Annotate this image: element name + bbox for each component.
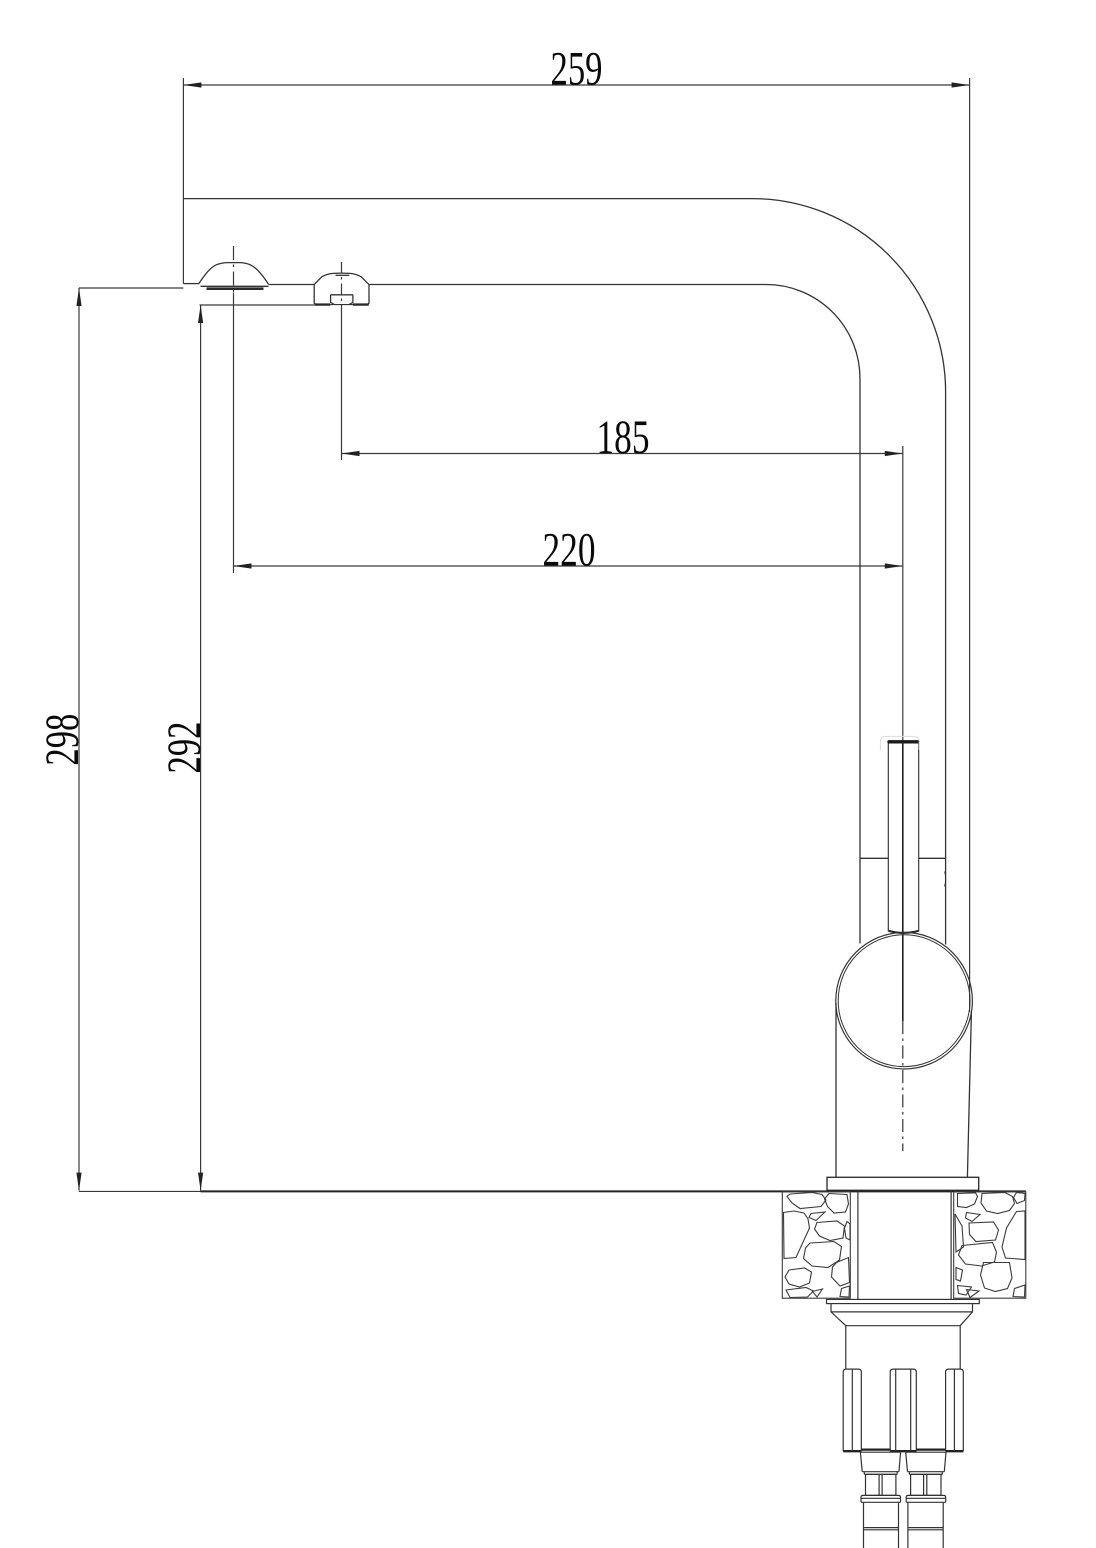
svg-text:185: 185 — [597, 412, 650, 464]
svg-text:220: 220 — [543, 524, 596, 576]
svg-text:259: 259 — [551, 43, 603, 95]
svg-text:298: 298 — [37, 714, 89, 766]
svg-text:292: 292 — [159, 722, 211, 774]
